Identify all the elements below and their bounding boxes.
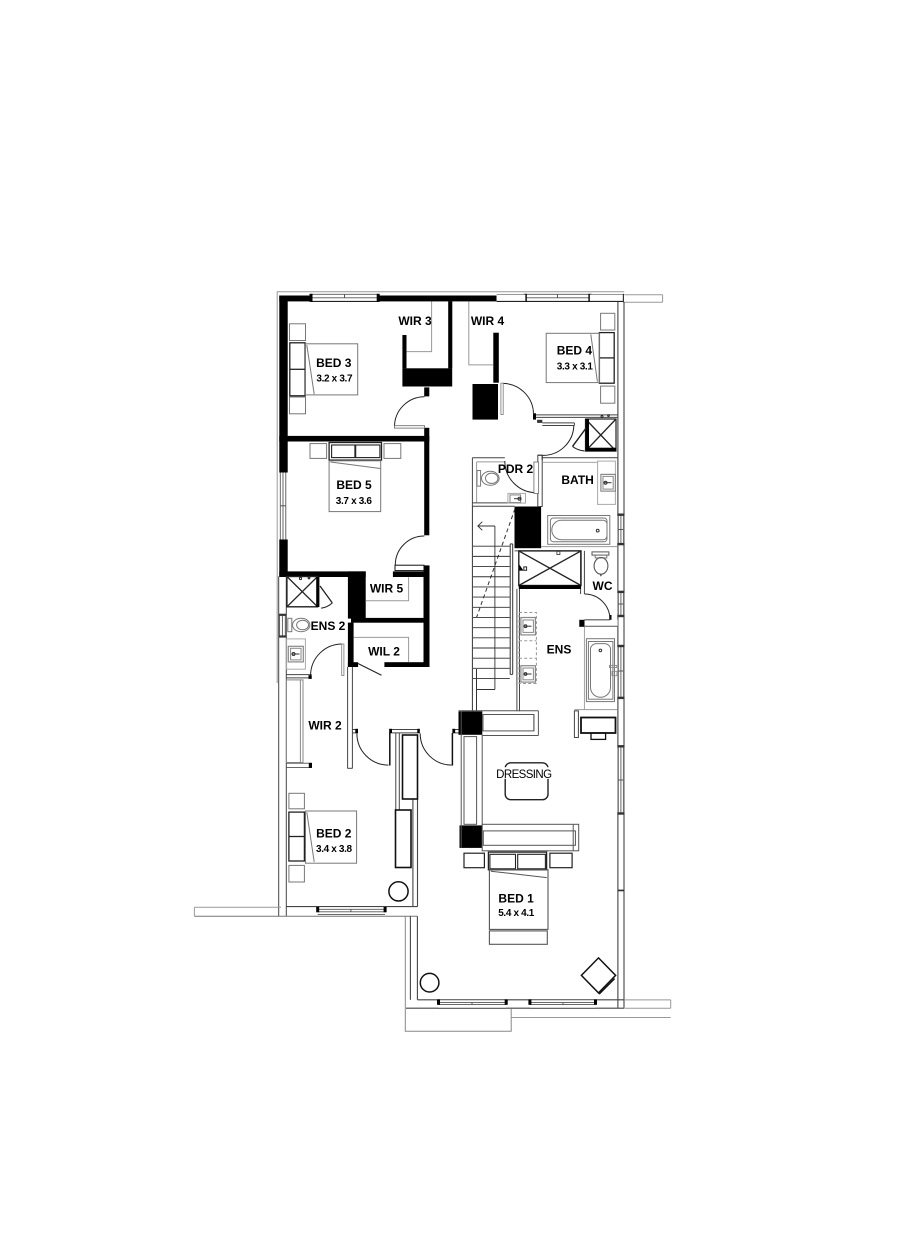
svg-text:3.2 x 3.7: 3.2 x 3.7 bbox=[316, 373, 353, 384]
svg-text:WIR 3: WIR 3 bbox=[398, 314, 432, 328]
svg-text:WIR 4: WIR 4 bbox=[471, 314, 505, 328]
svg-text:ENS 2: ENS 2 bbox=[311, 619, 346, 633]
svg-text:3.7 x 3.6: 3.7 x 3.6 bbox=[336, 496, 373, 507]
svg-text:WIR 2: WIR 2 bbox=[308, 719, 342, 733]
svg-text:ENS: ENS bbox=[547, 643, 572, 657]
svg-text:WIR 5: WIR 5 bbox=[370, 582, 404, 596]
svg-text:3.4 x 3.8: 3.4 x 3.8 bbox=[316, 844, 353, 855]
svg-text:BED 3: BED 3 bbox=[316, 356, 352, 370]
svg-text:5.4 x 4.1: 5.4 x 4.1 bbox=[498, 908, 535, 919]
svg-text:WIL 2: WIL 2 bbox=[368, 645, 400, 659]
svg-text:3.3 x 3.1: 3.3 x 3.1 bbox=[557, 361, 594, 372]
svg-text:BATH: BATH bbox=[561, 473, 593, 487]
svg-text:BED 1: BED 1 bbox=[498, 892, 534, 906]
svg-text:BED 2: BED 2 bbox=[316, 826, 352, 840]
svg-text:BED 5: BED 5 bbox=[336, 478, 372, 492]
svg-text:PDR 2: PDR 2 bbox=[498, 462, 534, 476]
svg-text:WC: WC bbox=[593, 579, 613, 593]
svg-text:BED 4: BED 4 bbox=[557, 344, 593, 358]
svg-text:DRESSING: DRESSING bbox=[496, 769, 552, 781]
